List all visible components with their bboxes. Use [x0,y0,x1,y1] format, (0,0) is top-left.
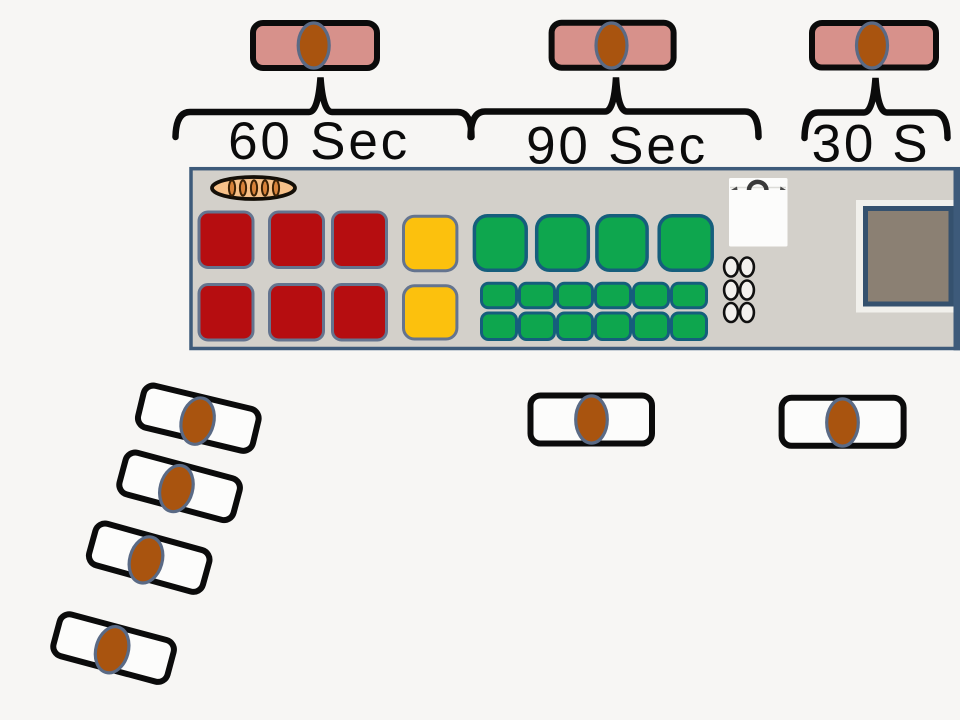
svg-text:90 Sec: 90 Sec [526,117,708,176]
svg-text:30S: 30S [812,115,931,174]
svg-text:60 Sec: 60 Sec [228,112,410,171]
